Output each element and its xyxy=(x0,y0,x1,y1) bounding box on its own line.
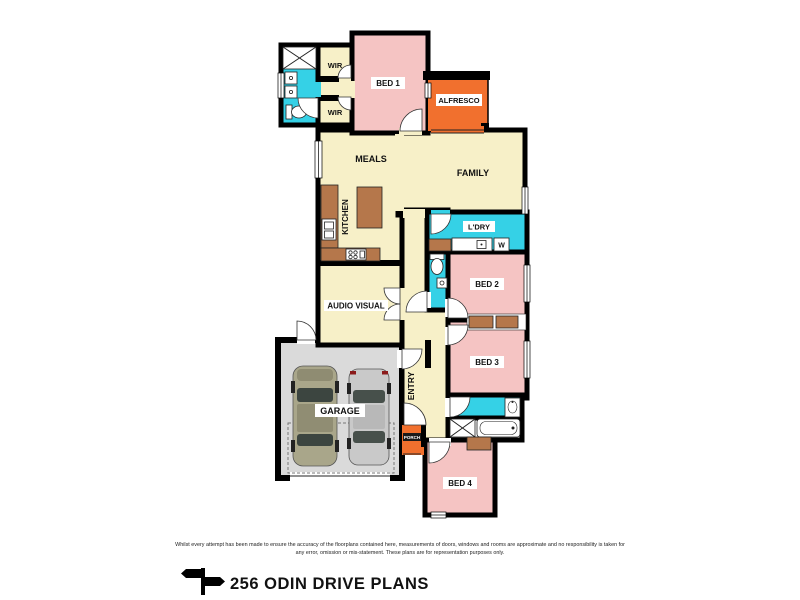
label-laundry: L'DRY xyxy=(468,223,490,232)
robe-bed4 xyxy=(467,437,491,450)
page-title: 256 ODIN DRIVE PLANS xyxy=(230,575,429,593)
signpost-icon xyxy=(181,568,225,595)
label-alfresco: ALFRESCO xyxy=(438,96,479,105)
disclaimer: Whilst every attempt has been made to en… xyxy=(175,542,625,556)
laundry-cabinet xyxy=(429,239,451,251)
label-wir2: WIR xyxy=(328,108,343,117)
label-family: FAMILY xyxy=(457,168,489,178)
disclaimer-line1: Whilst every attempt has been made to en… xyxy=(175,542,625,548)
label-bed4: BED 4 xyxy=(448,479,472,488)
laundry-trough xyxy=(452,238,492,251)
kitchen-island xyxy=(357,187,382,228)
door-garage-external xyxy=(297,321,316,340)
window-family xyxy=(522,187,528,214)
alfresco-top-wall xyxy=(423,71,490,80)
window-bed2 xyxy=(524,265,530,302)
robe-bed2-bed3 xyxy=(467,314,526,330)
wir1-wall xyxy=(318,76,340,82)
label-washer: W xyxy=(498,243,505,250)
label-porch: PORCH xyxy=(404,435,420,440)
wir2-wall xyxy=(318,95,340,101)
label-kitchen: KITCHEN xyxy=(341,199,350,235)
label-entry: ENTRY xyxy=(406,371,416,400)
bathtub-fixture xyxy=(477,419,520,437)
label-wir1: WIR xyxy=(328,61,343,70)
floorplan-page: WIR WIR BED 1 ALFRESCO MEALS FAMILY KITC… xyxy=(0,0,800,600)
label-bed3: BED 3 xyxy=(475,358,499,367)
entry-stub-wall xyxy=(425,340,431,368)
disclaimer-line2: any error, omission or mis-statement. Th… xyxy=(296,550,505,556)
window-meals xyxy=(315,141,322,178)
shower-fixture-ensuite xyxy=(283,47,316,69)
sink-fixture-kitchen xyxy=(322,219,336,240)
window-bed3 xyxy=(524,341,530,378)
title-block: 256 ODIN DRIVE PLANS xyxy=(181,568,429,595)
shower-fixture-bath xyxy=(450,419,475,437)
stove-fixture xyxy=(346,249,366,260)
sink-fixture-bath xyxy=(505,398,520,417)
floorplan-drawing: WIR WIR BED 1 ALFRESCO MEALS FAMILY KITC… xyxy=(0,0,800,600)
window-ensuite xyxy=(278,73,284,98)
label-bed2: BED 2 xyxy=(475,280,499,289)
window-bed4 xyxy=(431,512,446,518)
window-bed1 xyxy=(425,83,431,98)
label-audio-visual: AUDIO VISUAL xyxy=(327,302,384,311)
basin-fixture-wc xyxy=(437,278,447,288)
label-garage: GARAGE xyxy=(320,406,360,416)
label-meals: MEALS xyxy=(355,154,387,164)
toilet-fixture-wc xyxy=(430,254,444,275)
label-bed1: BED 1 xyxy=(376,79,400,88)
